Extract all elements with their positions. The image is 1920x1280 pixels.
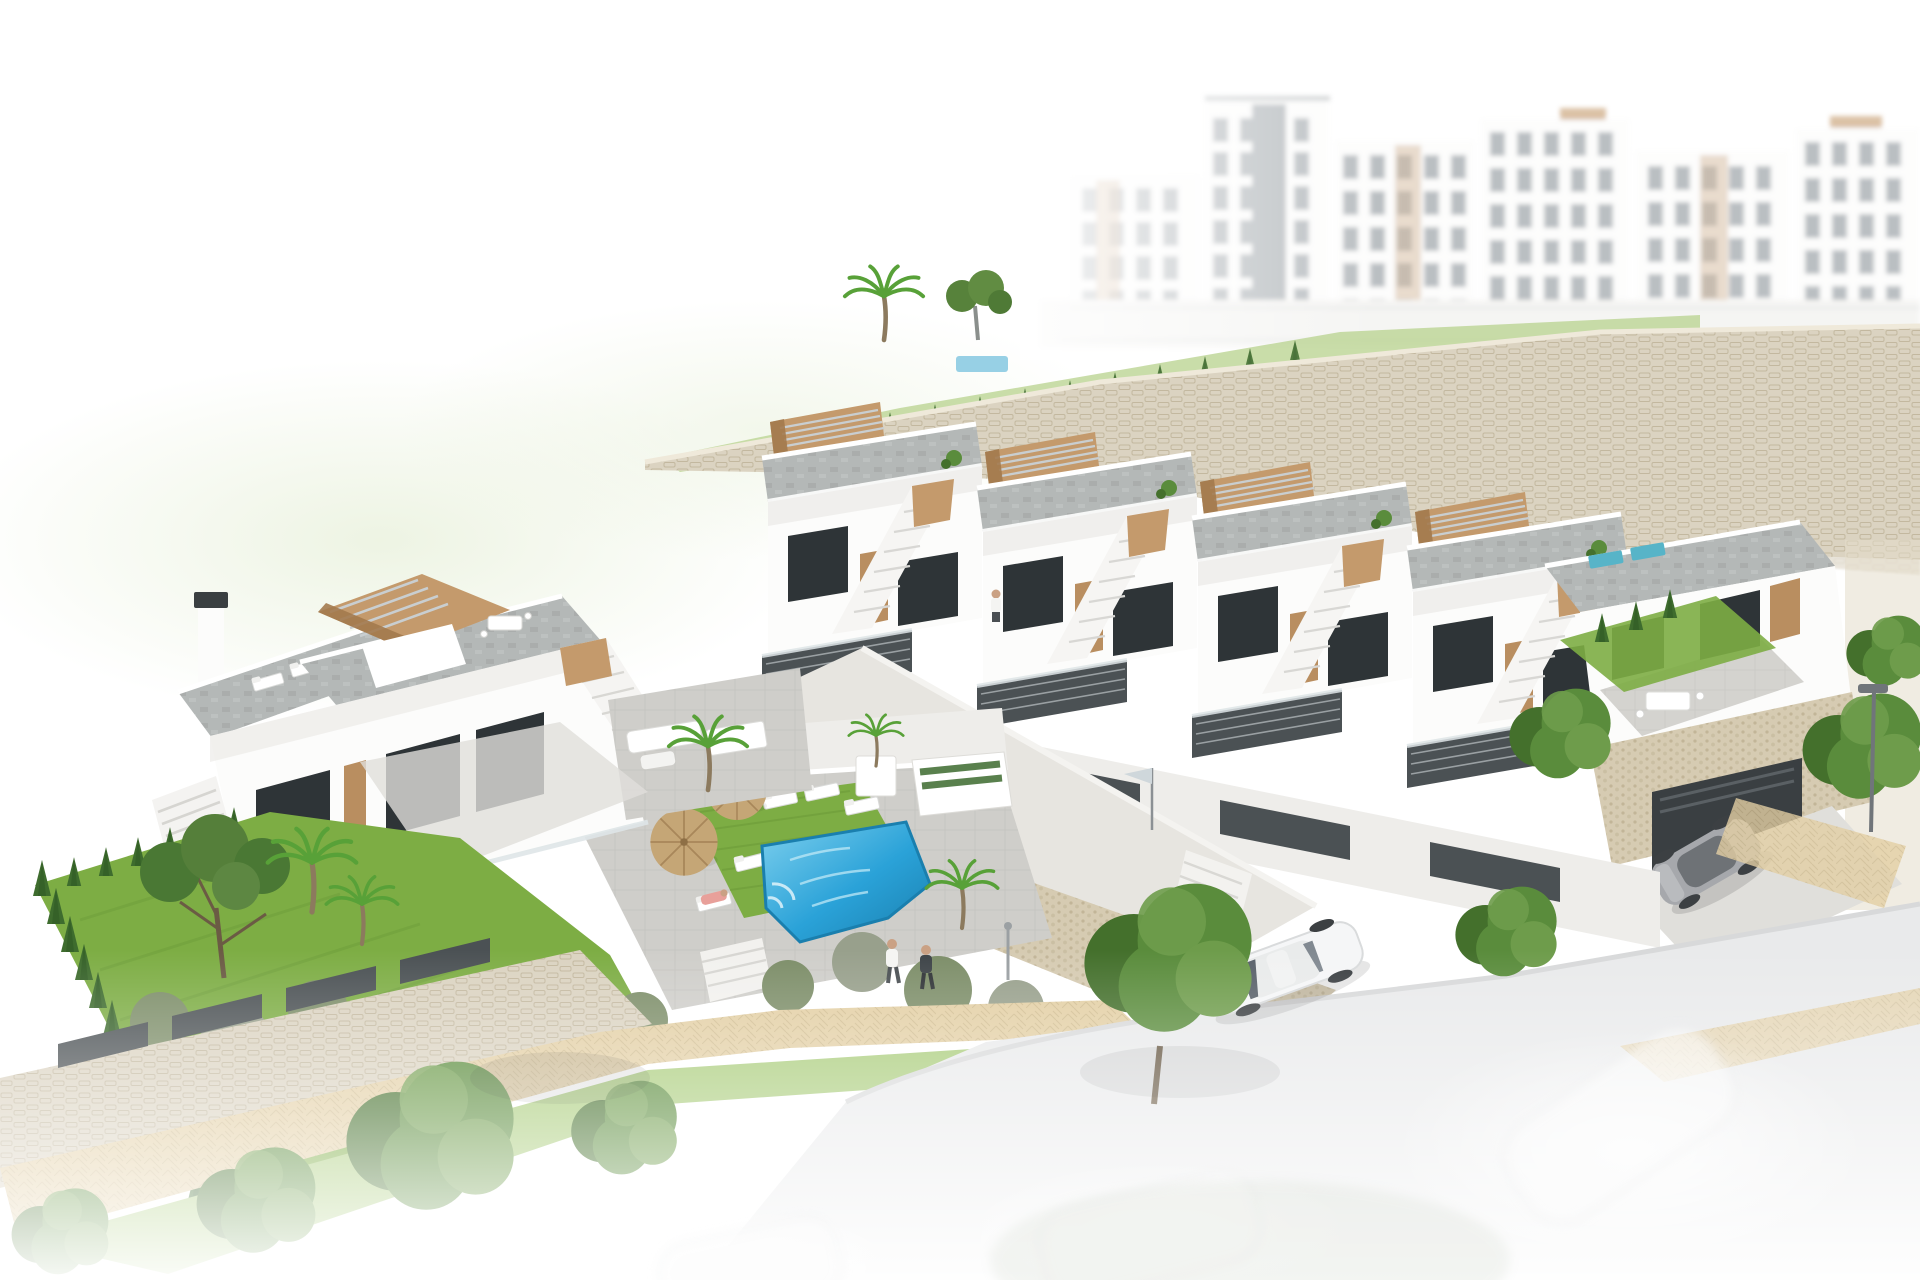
apartment-haze-fade [1020, 60, 1380, 360]
upper-lap-pool [956, 356, 1008, 372]
straw-umbrella [650, 808, 717, 875]
render-canvas [0, 0, 1920, 1280]
person-on-stairs [991, 590, 1001, 623]
chimney [198, 598, 224, 682]
